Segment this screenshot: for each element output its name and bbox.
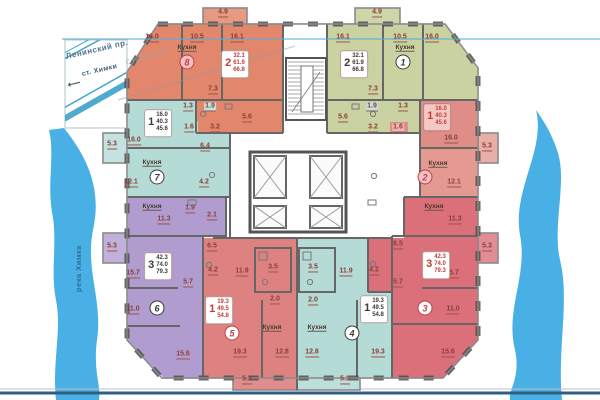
dimension-label: 7.3 bbox=[208, 85, 218, 94]
dimension-label: 16.0 bbox=[145, 33, 159, 42]
dimension-label: 19.3 bbox=[371, 348, 385, 357]
dimension-label: 5.7 bbox=[183, 278, 193, 287]
area-value: 16.0 bbox=[156, 112, 168, 119]
dimension-label: 1.6 bbox=[392, 123, 404, 132]
dimension-label: 4.9 bbox=[372, 8, 382, 17]
area-values: 19.349.554.8 bbox=[372, 298, 384, 320]
area-value: 66.8 bbox=[352, 68, 364, 75]
apartment-badge-1[interactable]: 1 bbox=[396, 55, 411, 70]
dimension-label: 5.3 bbox=[107, 140, 117, 149]
area-value: 19.3 bbox=[217, 299, 229, 306]
dimension-label: 5.3 bbox=[107, 242, 117, 251]
area-values: 19.349.554.8 bbox=[217, 299, 229, 321]
area-values: 32.161.966.8 bbox=[233, 53, 245, 75]
label-layer: Ленинский пр. ⟵ ст. Химки Старбеево река… bbox=[0, 0, 600, 400]
dimension-label: 5.3 bbox=[482, 242, 492, 251]
apartment-badge-4[interactable]: 4 bbox=[345, 326, 360, 341]
area-value: 32.1 bbox=[352, 53, 364, 60]
dimension-label: 1.9 bbox=[366, 102, 378, 111]
dimension-label: 12.8 bbox=[275, 348, 289, 357]
direction-arrow-icon: ⟵ bbox=[67, 77, 82, 91]
area-value: 66.8 bbox=[233, 68, 245, 75]
dimension-label: 6.5 bbox=[207, 242, 217, 251]
area-value: 49.5 bbox=[217, 306, 229, 313]
room-count: 1 bbox=[427, 112, 433, 123]
dimension-label: 1.6 bbox=[184, 123, 194, 132]
kitchen-label: Кухня bbox=[143, 203, 162, 211]
room-count: 1 bbox=[148, 118, 154, 129]
street-name-khimki: ст. Химки bbox=[81, 63, 118, 78]
apartment-badge-7[interactable]: 7 bbox=[150, 170, 165, 185]
area-value: 16.0 bbox=[435, 106, 447, 113]
apartment-card-7[interactable]: 116.040.345.6 bbox=[144, 109, 172, 137]
dimension-label: 6.4 bbox=[200, 142, 210, 151]
area-value: 40.3 bbox=[156, 119, 168, 126]
dimension-label: 3.5 bbox=[268, 263, 278, 272]
area-value: 40.3 bbox=[435, 113, 447, 120]
area-value: 45.6 bbox=[156, 127, 168, 134]
area-values: 16.040.345.6 bbox=[156, 112, 168, 134]
dimension-label: 5.6 bbox=[338, 113, 348, 122]
area-value: 42.3 bbox=[156, 255, 168, 262]
area-value: 45.6 bbox=[435, 121, 447, 128]
dimension-label: 10.5 bbox=[190, 33, 204, 42]
apartment-card-3[interactable]: 342.374.079.3 bbox=[422, 251, 450, 279]
dimension-label: 6.5 bbox=[393, 240, 403, 249]
kitchen-label: Кухня bbox=[425, 203, 444, 211]
area-value: 74.0 bbox=[434, 261, 446, 268]
area-value: 61.9 bbox=[352, 60, 364, 67]
room-count: 2 bbox=[344, 59, 350, 70]
dimension-label: 3.2 bbox=[368, 123, 378, 132]
area-value: 61.9 bbox=[233, 60, 245, 67]
dimension-label: 12.1 bbox=[124, 178, 138, 187]
dimension-label: 16.0 bbox=[425, 33, 439, 42]
dimension-label: 1.3 bbox=[398, 102, 408, 111]
dimension-label: 4.2 bbox=[369, 266, 379, 275]
area-value: 79.3 bbox=[156, 270, 168, 277]
dimension-label: 4.9 bbox=[218, 8, 228, 17]
dimension-label: 11.0 bbox=[446, 305, 459, 314]
dimension-label: 11.9 bbox=[339, 267, 352, 276]
dimension-label: 3.5 bbox=[308, 263, 318, 272]
dimension-label: 1.9 bbox=[204, 102, 216, 111]
apartment-badge-8[interactable]: 8 bbox=[180, 55, 195, 70]
dimension-label: 11.9 bbox=[235, 267, 248, 276]
dimension-label: 4.2 bbox=[199, 178, 209, 187]
dimension-label: 16.1 bbox=[336, 33, 350, 42]
dimension-label: 1.3 bbox=[183, 102, 193, 111]
apartment-badge-2[interactable]: 2 bbox=[418, 170, 433, 185]
dimension-label: 11.0 bbox=[126, 305, 139, 314]
apartment-badge-5[interactable]: 5 bbox=[225, 326, 240, 341]
area-values: 42.374.079.3 bbox=[434, 254, 446, 276]
dimension-label: 15.6 bbox=[441, 348, 455, 357]
dimension-label: 4.2 bbox=[208, 266, 218, 275]
room-count: 1 bbox=[209, 305, 215, 316]
area-value: 32.1 bbox=[233, 53, 245, 60]
area-value: 42.3 bbox=[434, 254, 446, 261]
river-name: река Химка bbox=[74, 245, 83, 292]
apartment-card-6[interactable]: 342.374.079.3 bbox=[144, 252, 172, 280]
dimension-label: 16.1 bbox=[230, 33, 244, 42]
apartment-card-5[interactable]: 119.349.554.8 bbox=[205, 296, 233, 324]
dimension-label: 15.6 bbox=[176, 350, 190, 359]
area-value: 74.0 bbox=[156, 262, 168, 269]
dimension-label: 5.3 bbox=[482, 142, 492, 151]
dimension-label: 11.3 bbox=[157, 215, 170, 224]
floorplan-page: Ленинский пр. ⟵ ст. Химки Старбеево река… bbox=[0, 0, 600, 400]
dimension-label: 12.8 bbox=[305, 348, 319, 357]
dimension-label: 3.2 bbox=[210, 123, 220, 132]
area-value: 79.3 bbox=[434, 269, 446, 276]
district-name: Старбеево bbox=[125, 47, 169, 67]
area-values: 16.040.345.6 bbox=[435, 106, 447, 128]
room-count: 3 bbox=[148, 261, 154, 272]
street-name-leninsky: Ленинский пр. bbox=[65, 38, 129, 61]
room-count: 1 bbox=[364, 304, 370, 315]
dimension-label: 10.5 bbox=[393, 33, 407, 42]
dimension-label: 5.7 bbox=[393, 278, 403, 287]
kitchen-label: Кухня bbox=[263, 324, 282, 332]
dimension-label: 2.0 bbox=[270, 295, 280, 304]
dimension-label: 19.3 bbox=[233, 348, 247, 357]
apartment-badge-6[interactable]: 6 bbox=[150, 301, 165, 316]
kitchen-label: Кухня bbox=[143, 159, 162, 167]
kitchen-label: Кухня bbox=[308, 324, 327, 332]
dimension-label: 15.7 bbox=[126, 269, 140, 278]
area-values: 42.374.079.3 bbox=[156, 255, 168, 277]
area-value: 54.8 bbox=[217, 314, 229, 321]
dimension-label: 7.3 bbox=[368, 85, 378, 94]
kitchen-label: Кухня bbox=[396, 44, 415, 52]
area-value: 19.3 bbox=[372, 298, 384, 305]
dimension-label: 2.1 bbox=[207, 211, 217, 220]
dimension-label: 11.3 bbox=[448, 215, 461, 224]
dimension-label: 16.0 bbox=[127, 136, 141, 145]
dimension-label: 5.3 bbox=[340, 375, 350, 384]
room-count: 2 bbox=[225, 59, 231, 70]
dimension-label: 12.1 bbox=[447, 178, 461, 187]
apartment-card-2[interactable]: 116.040.345.6 bbox=[423, 103, 451, 131]
dimension-label: 5.3 bbox=[242, 375, 252, 384]
area-values: 32.161.966.8 bbox=[352, 53, 364, 75]
area-value: 49.5 bbox=[372, 305, 384, 312]
apartment-card-4[interactable]: 119.349.554.8 bbox=[360, 295, 388, 323]
apartment-badge-3[interactable]: 3 bbox=[418, 301, 433, 316]
dimension-label: 5.6 bbox=[242, 113, 252, 122]
area-value: 54.8 bbox=[372, 313, 384, 320]
dimension-label: 1.9 bbox=[185, 204, 195, 213]
room-count: 3 bbox=[426, 260, 432, 271]
apartment-card-1[interactable]: 232.161.966.8 bbox=[340, 50, 368, 78]
dimension-label: 2.0 bbox=[308, 296, 318, 305]
kitchen-label: Кухня bbox=[178, 44, 197, 52]
apartment-card-8[interactable]: 232.161.966.8 bbox=[221, 50, 249, 78]
kitchen-label: Кухня bbox=[429, 160, 448, 168]
dimension-label: 16.0 bbox=[444, 134, 458, 143]
